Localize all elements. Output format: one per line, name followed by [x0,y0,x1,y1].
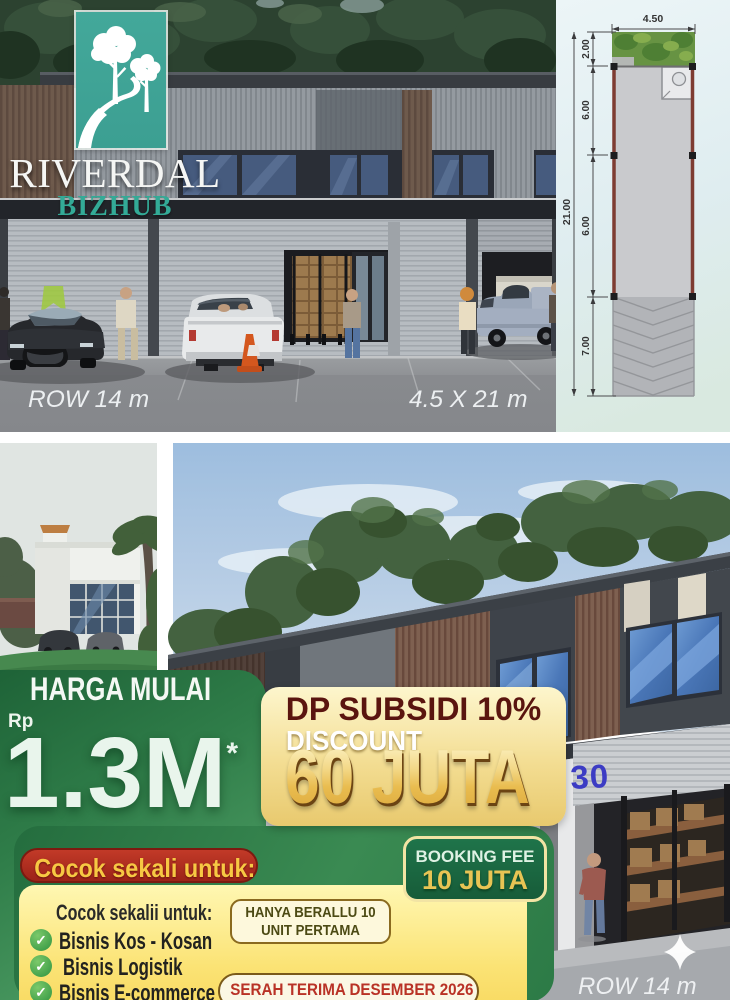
svg-text:4.50: 4.50 [643,13,664,25]
svg-text:6.00: 6.00 [581,216,592,236]
svg-text:7.00: 7.00 [581,336,592,356]
svg-text:6.00: 6.00 [581,100,592,120]
svg-text:21.00: 21.00 [561,199,573,225]
svg-text:2.00: 2.00 [581,39,592,59]
